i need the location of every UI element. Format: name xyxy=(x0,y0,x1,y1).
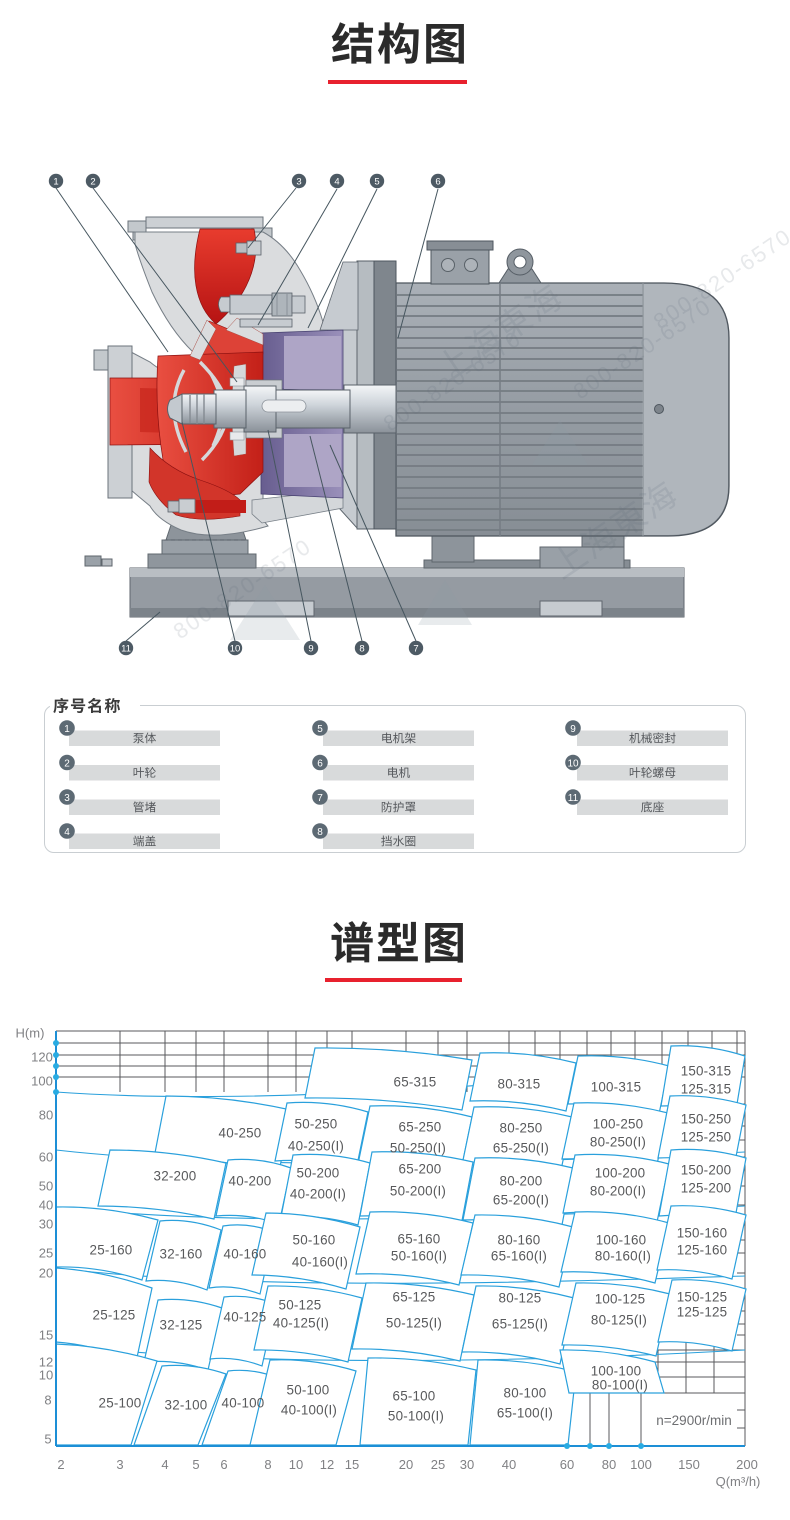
svg-text:80: 80 xyxy=(39,1108,53,1123)
svg-text:4: 4 xyxy=(64,827,70,838)
svg-text:8: 8 xyxy=(44,1393,51,1408)
svg-text:2: 2 xyxy=(90,177,95,188)
svg-text:80-125(I): 80-125(I) xyxy=(591,1313,647,1328)
svg-text:125-200: 125-200 xyxy=(681,1181,732,1196)
svg-text:60: 60 xyxy=(560,1457,574,1472)
svg-text:6: 6 xyxy=(317,758,323,769)
svg-text:40: 40 xyxy=(502,1457,516,1472)
svg-text:200: 200 xyxy=(736,1457,758,1472)
svg-text:32-100: 32-100 xyxy=(165,1398,208,1413)
svg-text:50: 50 xyxy=(39,1179,53,1194)
svg-text:65-160: 65-160 xyxy=(398,1232,441,1247)
svg-text:20: 20 xyxy=(39,1266,53,1281)
svg-text:40-100(I): 40-100(I) xyxy=(281,1403,337,1418)
svg-text:1: 1 xyxy=(53,177,58,188)
svg-text:125-125: 125-125 xyxy=(677,1305,728,1320)
svg-text:20: 20 xyxy=(399,1457,413,1472)
svg-text:100-160: 100-160 xyxy=(596,1233,647,1248)
svg-text:11: 11 xyxy=(121,644,131,655)
svg-text:40-250: 40-250 xyxy=(219,1126,262,1141)
svg-text:65-200: 65-200 xyxy=(399,1162,442,1177)
svg-text:Q(m³/h): Q(m³/h) xyxy=(716,1474,761,1489)
svg-text:80-125: 80-125 xyxy=(499,1291,542,1306)
svg-text:100-100: 100-100 xyxy=(591,1364,642,1379)
svg-text:1: 1 xyxy=(64,724,70,735)
svg-text:80-200: 80-200 xyxy=(500,1174,543,1189)
svg-text:4: 4 xyxy=(161,1457,168,1472)
svg-text:n=2900r/min: n=2900r/min xyxy=(656,1413,731,1428)
svg-text:15: 15 xyxy=(39,1328,53,1343)
svg-text:5: 5 xyxy=(192,1457,199,1472)
svg-text:6: 6 xyxy=(435,177,440,188)
svg-text:3: 3 xyxy=(296,177,301,188)
svg-text:25: 25 xyxy=(39,1246,53,1261)
svg-text:50-100: 50-100 xyxy=(287,1383,330,1398)
svg-text:9: 9 xyxy=(308,644,313,655)
svg-text:32-200: 32-200 xyxy=(154,1169,197,1184)
svg-text:50-250(I): 50-250(I) xyxy=(390,1141,446,1156)
svg-text:5: 5 xyxy=(44,1432,51,1447)
svg-text:80-100(I): 80-100(I) xyxy=(592,1378,648,1393)
svg-text:25-100: 25-100 xyxy=(99,1396,142,1411)
svg-text:125-250: 125-250 xyxy=(681,1130,732,1145)
svg-text:8: 8 xyxy=(359,644,364,655)
svg-text:65-100: 65-100 xyxy=(393,1389,436,1404)
svg-text:50-160: 50-160 xyxy=(293,1233,336,1248)
svg-text:50-100(I): 50-100(I) xyxy=(388,1409,444,1424)
svg-text:80-160: 80-160 xyxy=(498,1233,541,1248)
svg-text:40-100: 40-100 xyxy=(222,1396,265,1411)
svg-text:30: 30 xyxy=(39,1217,53,1232)
svg-text:2: 2 xyxy=(64,758,70,769)
svg-text:10: 10 xyxy=(289,1457,303,1472)
svg-text:40-160(I): 40-160(I) xyxy=(292,1255,348,1270)
svg-text:2: 2 xyxy=(57,1457,64,1472)
svg-text:8: 8 xyxy=(264,1457,271,1472)
svg-text:25-125: 25-125 xyxy=(93,1308,136,1323)
svg-text:40-125: 40-125 xyxy=(224,1310,267,1325)
svg-text:100-315: 100-315 xyxy=(591,1080,642,1095)
svg-text:32-125: 32-125 xyxy=(160,1318,203,1333)
svg-text:7: 7 xyxy=(317,793,323,804)
svg-text:150: 150 xyxy=(678,1457,700,1472)
svg-text:80-250(I): 80-250(I) xyxy=(590,1135,646,1150)
svg-text:10: 10 xyxy=(39,1368,53,1383)
svg-text:80-100: 80-100 xyxy=(504,1386,547,1401)
svg-text:100-125: 100-125 xyxy=(595,1292,646,1307)
svg-text:50-125: 50-125 xyxy=(279,1298,322,1313)
svg-text:65-250: 65-250 xyxy=(399,1120,442,1135)
svg-text:80: 80 xyxy=(602,1457,616,1472)
svg-text:12: 12 xyxy=(320,1457,334,1472)
svg-text:60: 60 xyxy=(39,1150,53,1165)
svg-text:40-200: 40-200 xyxy=(229,1174,272,1189)
svg-text:50-250: 50-250 xyxy=(295,1117,338,1132)
svg-text:65-125(I): 65-125(I) xyxy=(492,1317,548,1332)
svg-text:5: 5 xyxy=(317,724,323,735)
svg-text:80-200(I): 80-200(I) xyxy=(590,1184,646,1199)
svg-text:50-160(I): 50-160(I) xyxy=(391,1249,447,1264)
svg-text:7: 7 xyxy=(413,644,418,655)
svg-text:50-200: 50-200 xyxy=(297,1166,340,1181)
svg-text:H(m): H(m) xyxy=(16,1026,45,1041)
svg-text:150-160: 150-160 xyxy=(677,1226,728,1241)
svg-text:100: 100 xyxy=(630,1457,652,1472)
svg-text:150-125: 150-125 xyxy=(677,1290,728,1305)
svg-text:3: 3 xyxy=(116,1457,123,1472)
svg-text:150-200: 150-200 xyxy=(681,1163,732,1178)
svg-text:3: 3 xyxy=(64,793,70,804)
svg-text:150-250: 150-250 xyxy=(681,1112,732,1127)
svg-text:65-200(I): 65-200(I) xyxy=(493,1193,549,1208)
svg-text:120: 120 xyxy=(31,1050,53,1065)
svg-text:80-315: 80-315 xyxy=(498,1077,541,1092)
svg-text:80-250: 80-250 xyxy=(500,1121,543,1136)
svg-text:65-315: 65-315 xyxy=(394,1075,437,1090)
svg-text:30: 30 xyxy=(460,1457,474,1472)
svg-text:80-160(I): 80-160(I) xyxy=(595,1249,651,1264)
svg-text:150-315: 150-315 xyxy=(681,1064,732,1079)
svg-text:100-200: 100-200 xyxy=(595,1166,646,1181)
svg-text:40-160: 40-160 xyxy=(224,1247,267,1262)
svg-text:40-200(I): 40-200(I) xyxy=(290,1187,346,1202)
svg-text:25: 25 xyxy=(431,1457,445,1472)
svg-text:40-125(I): 40-125(I) xyxy=(273,1316,329,1331)
svg-text:10: 10 xyxy=(567,758,579,769)
svg-text:9: 9 xyxy=(570,724,576,735)
svg-text:32-160: 32-160 xyxy=(160,1247,203,1262)
svg-text:11: 11 xyxy=(568,793,579,804)
svg-text:25-160: 25-160 xyxy=(90,1243,133,1258)
svg-text:65-250(I): 65-250(I) xyxy=(493,1141,549,1156)
svg-text:125-160: 125-160 xyxy=(677,1243,728,1258)
svg-text:6: 6 xyxy=(220,1457,227,1472)
svg-text:10: 10 xyxy=(230,644,241,655)
svg-text:100-250: 100-250 xyxy=(593,1117,644,1132)
svg-text:8: 8 xyxy=(317,827,323,838)
svg-text:50-125(I): 50-125(I) xyxy=(386,1316,442,1331)
svg-text:15: 15 xyxy=(345,1457,359,1472)
svg-text:40-250(I): 40-250(I) xyxy=(288,1139,344,1154)
svg-text:4: 4 xyxy=(334,177,339,188)
svg-text:50-200(I): 50-200(I) xyxy=(390,1184,446,1199)
svg-text:40: 40 xyxy=(39,1198,53,1213)
svg-text:65-100(I): 65-100(I) xyxy=(497,1406,553,1421)
svg-text:125-315: 125-315 xyxy=(681,1082,732,1097)
svg-text:5: 5 xyxy=(374,177,379,188)
svg-text:65-160(I): 65-160(I) xyxy=(491,1249,547,1264)
svg-text:65-125: 65-125 xyxy=(393,1290,436,1305)
svg-text:100: 100 xyxy=(31,1074,53,1089)
